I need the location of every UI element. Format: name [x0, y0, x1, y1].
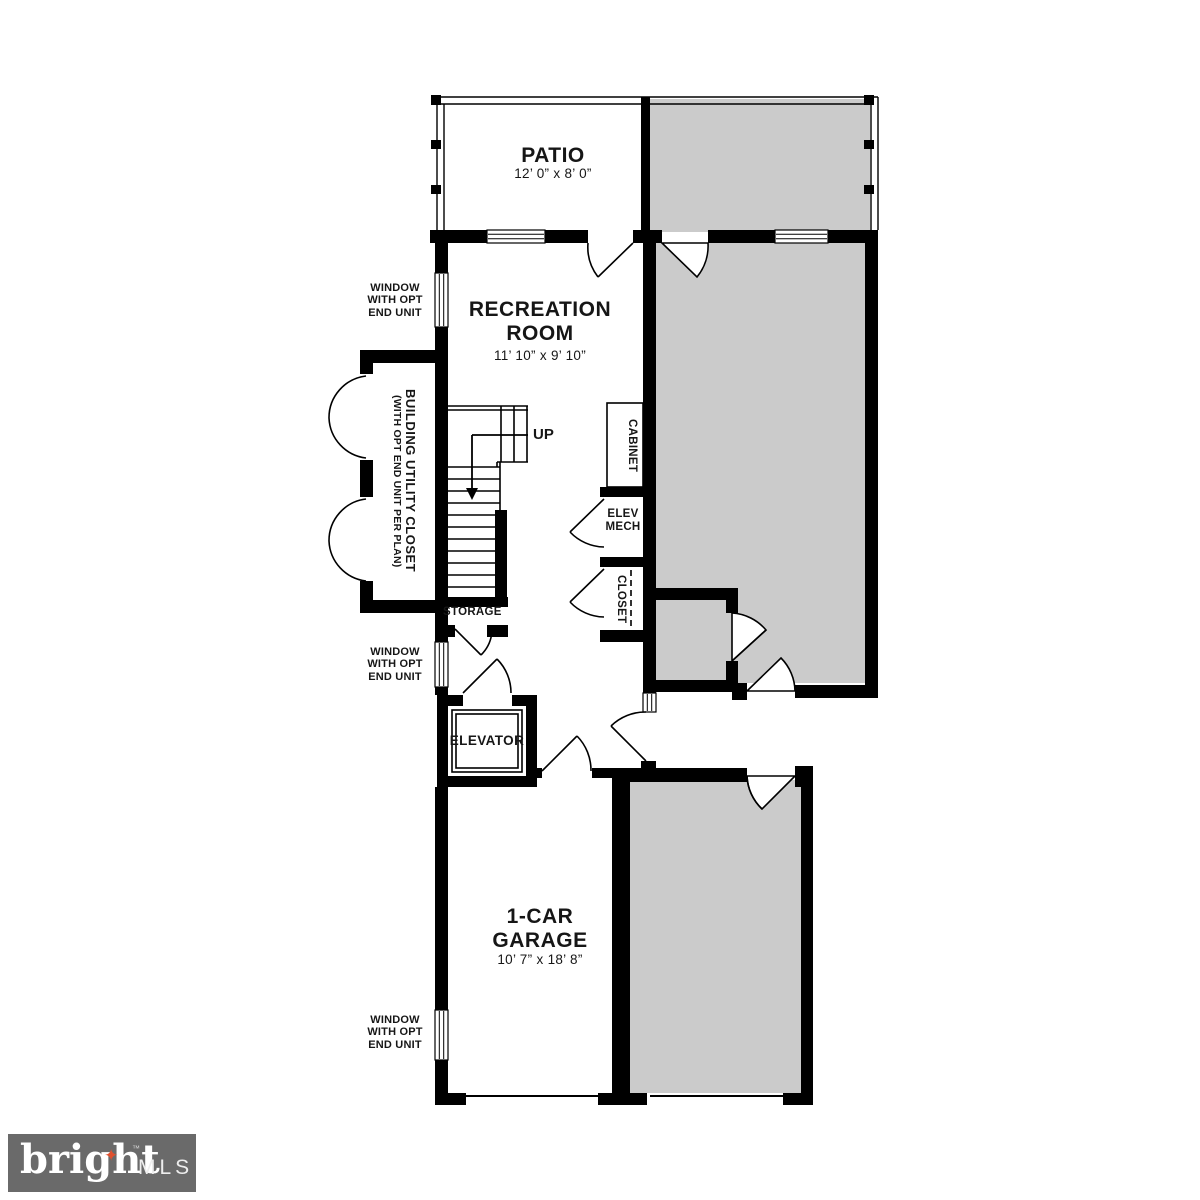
- recreation-room-name: RECREATION ROOM: [462, 298, 618, 345]
- window-left-2: [435, 642, 448, 687]
- stairs-up-label: UP: [533, 426, 563, 443]
- window-note-1: WINDOW WITH OPT END UNIT: [360, 282, 430, 319]
- utility-closet-label: BUILDING UTILITY CLOSET (WITH OPT END UN…: [374, 362, 418, 600]
- brightmls-logo: bright ✦ ™ MLS: [8, 1134, 196, 1192]
- closet-label: CLOSET: [605, 568, 627, 630]
- star-icon: ✦: [104, 1146, 118, 1166]
- utility-closet-note: (WITH OPT END UNIT PER PLAN): [391, 362, 403, 600]
- window-neighbor-top: [775, 230, 828, 243]
- logo-suffix: MLS: [138, 1156, 193, 1180]
- recreation-room-dims: 11’ 10” x 9’ 10”: [462, 348, 618, 363]
- floor-plan-page: PATIO 12’ 0” x 8’ 0” RECREATION ROOM 11’…: [0, 0, 1200, 1200]
- cabinet-label: CABINET: [612, 406, 638, 486]
- window-left-3: [435, 1010, 448, 1060]
- utility-closet-name: BUILDING UTILITY CLOSET: [403, 362, 418, 600]
- garage-dims: 10’ 7” x 18’ 8”: [462, 952, 618, 967]
- window-recreation-top: [487, 230, 545, 243]
- window-note-3: WINDOW WITH OPT END UNIT: [360, 1014, 430, 1051]
- window-entry: [643, 693, 656, 712]
- window-left-1: [435, 273, 448, 327]
- elevator-label: ELEVATOR: [440, 733, 534, 748]
- window-note-2: WINDOW WITH OPT END UNIT: [360, 646, 430, 683]
- patio-dims: 12’ 0” x 8’ 0”: [493, 166, 613, 181]
- storage-label: STORAGE: [443, 606, 501, 618]
- stairs: [443, 406, 528, 587]
- elev-mech-label: ELEV MECH: [599, 508, 647, 534]
- trademark-symbol: ™: [132, 1144, 140, 1153]
- patio-name: PATIO: [493, 144, 613, 168]
- garage-name: 1-CAR GARAGE: [472, 905, 608, 952]
